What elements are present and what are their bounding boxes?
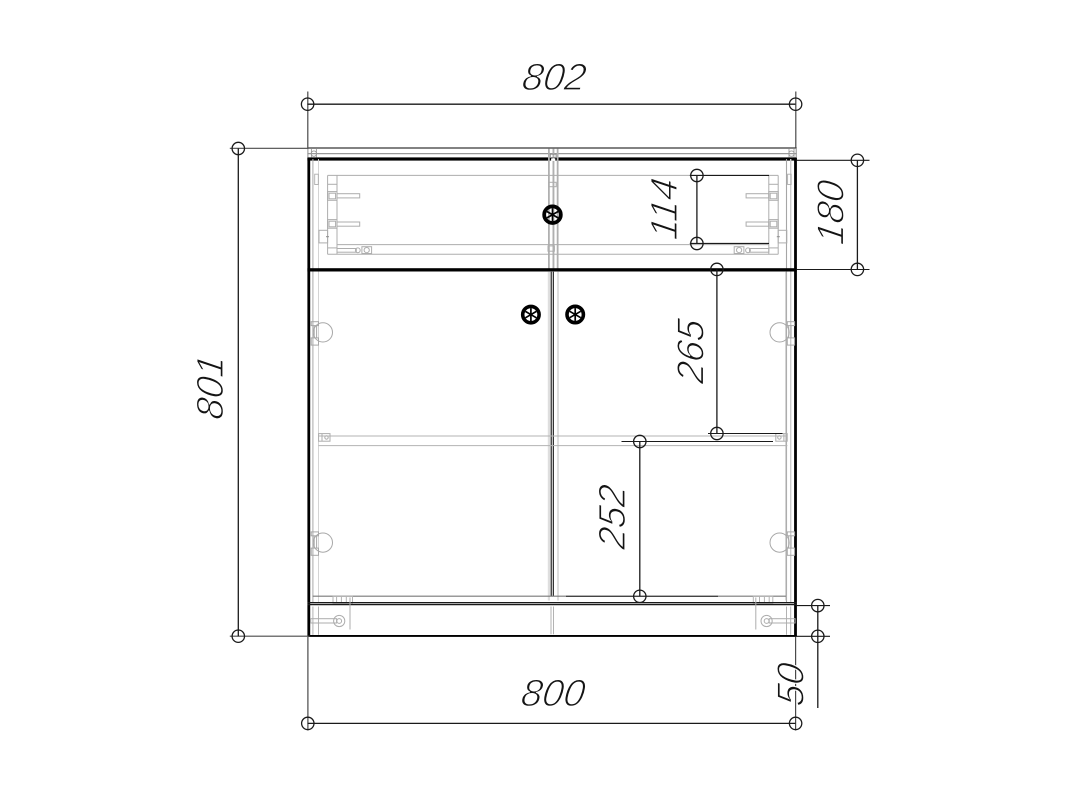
svg-text:114: 114 xyxy=(644,176,686,242)
svg-text:802: 802 xyxy=(520,57,589,99)
svg-text:265: 265 xyxy=(671,316,713,387)
svg-text:252: 252 xyxy=(592,482,634,552)
svg-text:180: 180 xyxy=(811,178,853,247)
svg-text:800: 800 xyxy=(519,673,588,715)
svg-text:801: 801 xyxy=(190,353,232,422)
svg-text:50: 50 xyxy=(771,660,813,708)
